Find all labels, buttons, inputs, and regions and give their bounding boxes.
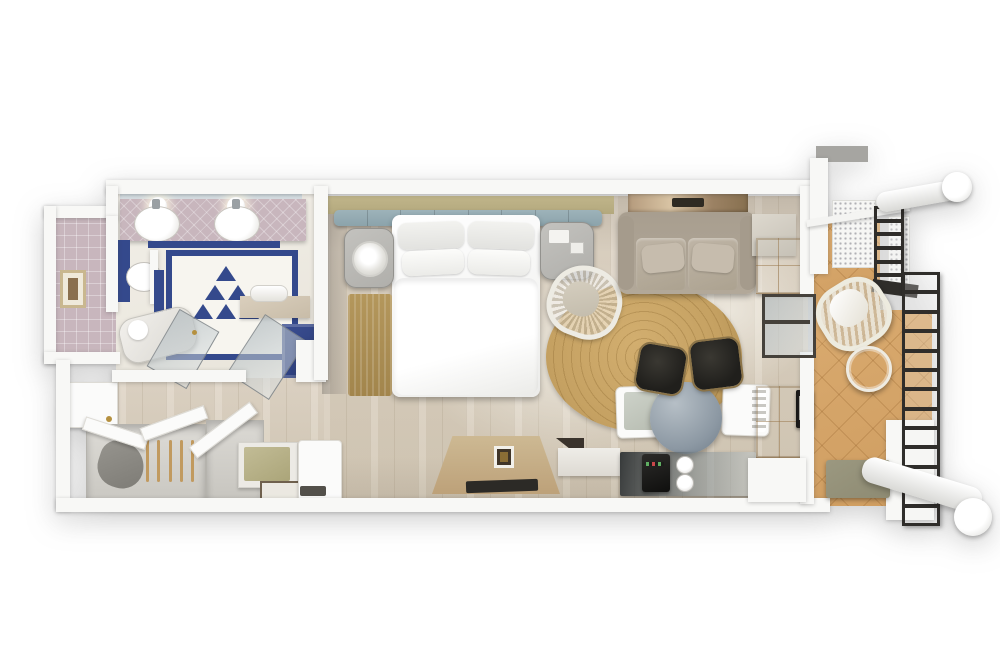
beam-bottom-end-cap <box>954 498 992 536</box>
entry-framed-art <box>60 270 86 308</box>
round-table <box>650 382 722 454</box>
floorplan-canvas <box>0 0 1000 667</box>
wire-side-table <box>846 346 892 392</box>
wall-bathroom-bedroom-divider <box>314 186 328 380</box>
bed-pillow-back-right <box>468 221 535 250</box>
desk-picture-frame <box>494 446 514 468</box>
balcony-railing-upper <box>874 206 904 290</box>
wall-bar-stub <box>748 458 806 502</box>
wall-art-dark-accent <box>672 198 704 207</box>
towel-roll <box>250 285 288 302</box>
sliding-glass-door-rail <box>762 320 810 324</box>
blue-tile-strip-horizontal <box>148 241 280 248</box>
wall-bathroom-bottom <box>112 370 246 382</box>
beam-top-end-cap <box>942 172 972 202</box>
white-cabinet-tray <box>300 486 326 496</box>
coffee-cup-2 <box>676 474 694 492</box>
ottoman-right <box>689 337 742 390</box>
entry-door-handle <box>106 416 112 422</box>
glass-door-knob <box>192 330 197 335</box>
armoire <box>756 238 802 294</box>
sink-right <box>214 206 260 242</box>
table-lamp <box>352 241 388 277</box>
bed-pillow-front-left <box>401 248 464 276</box>
bed-pillow-front-right <box>468 249 531 276</box>
coffee-maker <box>642 454 670 492</box>
wall-bathroom-left-upper <box>106 186 118 220</box>
sink-left <box>134 206 180 242</box>
wall-top <box>106 180 812 194</box>
nightstand-phone <box>548 229 570 244</box>
bed-duvet <box>394 278 538 395</box>
wall-left-lower <box>56 360 70 510</box>
nightstand-notepad <box>570 242 584 254</box>
wall-entry-left <box>44 206 56 364</box>
faucet-left <box>152 199 160 209</box>
coffee-maker-buttons <box>646 462 664 466</box>
faucet-right <box>232 199 240 209</box>
bed-pillow-back-left <box>398 221 465 250</box>
sliding-glass-door <box>762 294 816 358</box>
floorplan <box>0 0 1000 667</box>
desk-mat <box>466 479 538 494</box>
wall-entry-bathroom-divider <box>106 216 118 312</box>
luggage-bench-cushion <box>244 447 290 481</box>
ottoman-left <box>634 342 687 395</box>
sofa-arm-left <box>618 216 634 290</box>
bedside-rug <box>348 294 392 396</box>
sofa-pillow-left <box>641 242 686 274</box>
coffee-bar-ledge <box>558 448 620 476</box>
sofa-pillow-right <box>691 242 735 274</box>
closet-hangers <box>146 440 194 482</box>
bath-towel <box>128 320 148 340</box>
wall-bottom <box>56 498 830 512</box>
mosaic-triangle-row-1 <box>176 266 276 281</box>
coffee-cup-1 <box>676 456 694 474</box>
